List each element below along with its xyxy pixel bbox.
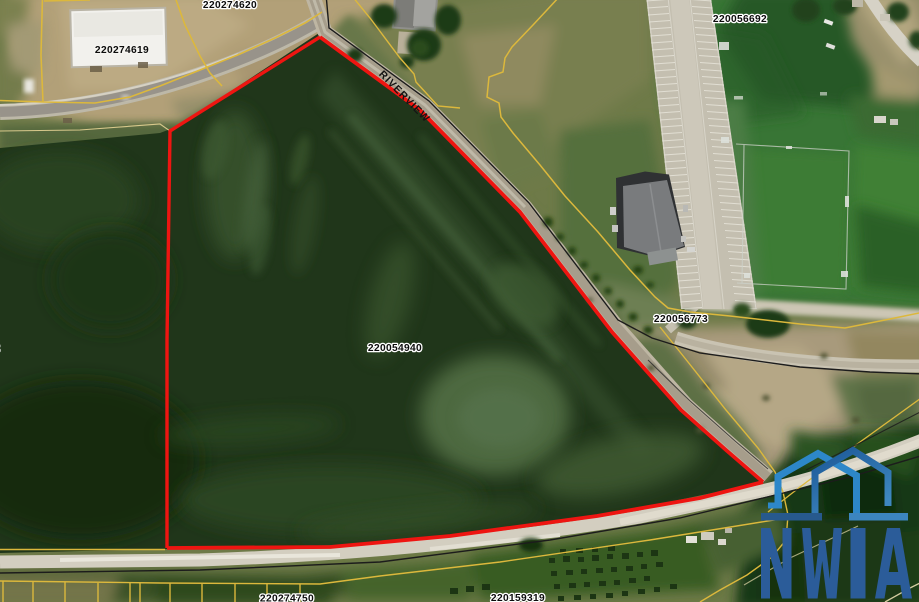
svg-text:220274619: 220274619 <box>95 45 149 56</box>
svg-text:220274620: 220274620 <box>203 0 257 11</box>
svg-text:220274750: 220274750 <box>260 594 314 602</box>
svg-text:220054940: 220054940 <box>368 343 422 354</box>
svg-text:220056773: 220056773 <box>654 314 708 325</box>
svg-text:220159319: 220159319 <box>491 593 545 602</box>
svg-text:220056692: 220056692 <box>713 14 767 25</box>
